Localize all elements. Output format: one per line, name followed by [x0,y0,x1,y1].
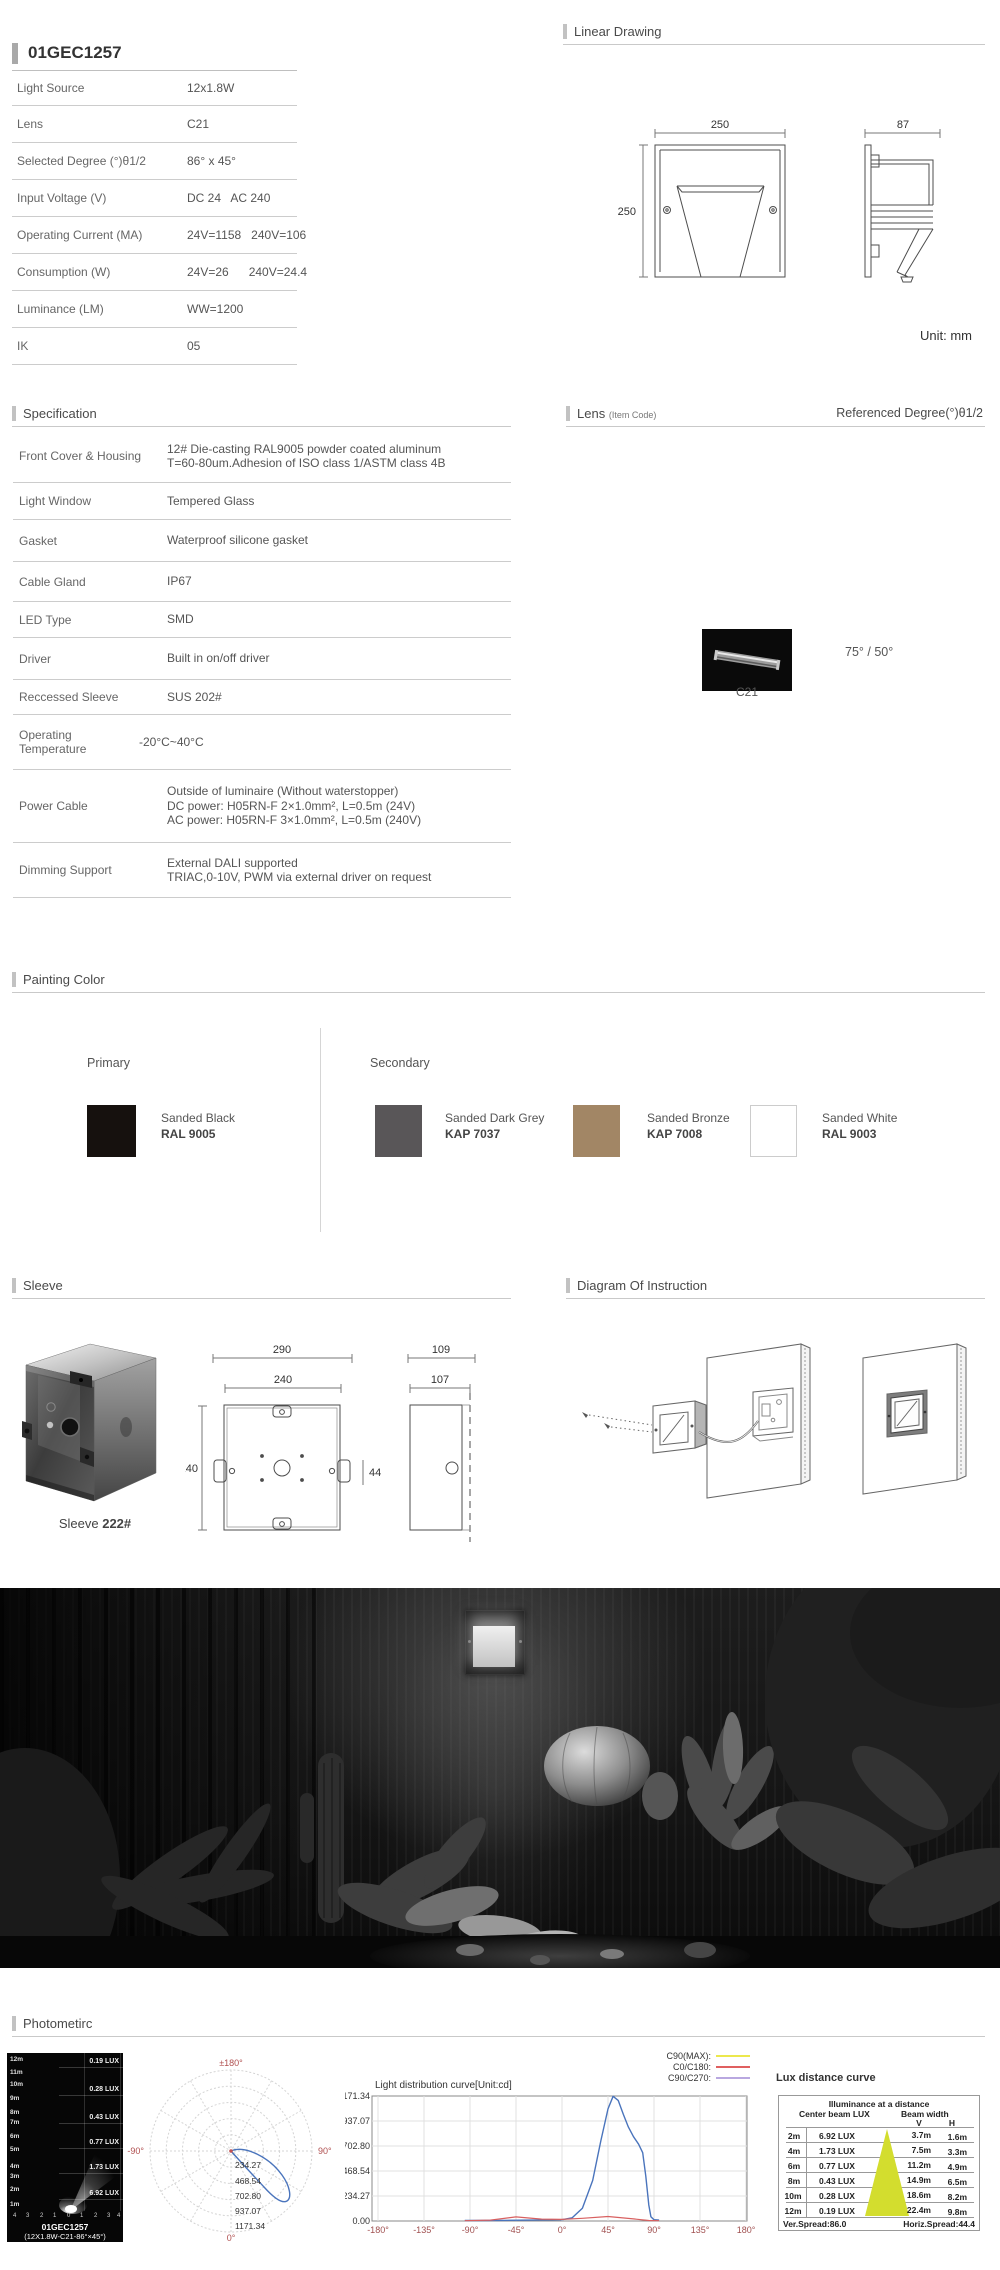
section-accent-bar [566,1278,570,1293]
table-row: Input Voltage (V)DC 24 AC 240 [12,180,297,217]
polar-diagram: ±180° -90° 90° 0° 234.27 468.54 702.80 9… [45,2055,335,2245]
photometric-header: Photometirc [12,2014,985,2037]
lens-image [702,629,792,691]
table-row: Operating Current (MA)24V=1158 240V=106 [12,217,297,254]
value-line: T=60-80um.Adhesion of ISO class 1/ASTM c… [167,456,445,471]
swatch-label: Sanded Dark GreyKAP 7037 [445,1110,544,1142]
polar-label-0: 0° [227,2233,236,2243]
lux-value: 6.92 LUX [819,2131,855,2141]
row-label: Front Cover & Housing [13,449,167,463]
lux-h-val: 3.3m [937,2147,967,2157]
section-title: Linear Drawing [574,24,661,39]
beam-distance: 8m [10,2109,19,2116]
row-value: 24V=1158 240V=106 [187,228,306,242]
swatch-name: Sanded Dark Grey [445,1110,544,1126]
sleeve-caption: Sleeve 222# [40,1516,150,1531]
table-row: Cable GlandIP67 [13,562,511,602]
beam-distance: 1m [10,2201,19,2208]
row-value: SUS 202# [167,690,222,705]
lux-distance-table: Illuminance at a distance Center beam LU… [778,2095,980,2231]
lens-title: Lens [577,406,605,421]
x-tick: -90° [462,2225,479,2235]
row-label: Power Cable [13,799,167,813]
table-row: Light WindowTempered Glass [13,483,511,520]
lux-value: 1.73 LUX [819,2146,855,2156]
sleeve-caption-text: Sleeve [59,1516,99,1531]
sleeve-side-drawing: 109 107 [400,1335,490,1545]
lux-h-val: 9.8m [937,2207,967,2217]
y-tick: 468.54 [345,2166,370,2176]
instruction-diagram [563,1320,985,1550]
row-value: 12# Die-casting RAL9005 powder coated al… [167,442,445,471]
table-row: Reccessed SleeveSUS 202# [13,680,511,715]
value-line: External DALI supported [167,856,431,871]
product-title-header: 01GEC1257 [12,40,297,71]
row-value: Built in on/off driver [167,651,270,666]
row-label: Dimming Support [13,863,167,877]
swatch-name: Sanded Bronze [647,1110,730,1126]
table-row: Selected Degree (°)θ1/286° x 45° [12,143,297,180]
polar-label-180: ±180° [219,2058,243,2068]
beam-distance: 9m [10,2095,19,2102]
dim-290: 290 [273,1344,291,1356]
x-tick: 45° [601,2225,615,2235]
value-line: 12# Die-casting RAL9005 powder coated al… [167,442,445,457]
y-tick: 937.07 [345,2116,370,2126]
table-row: Light Source12x1.8W [12,70,297,106]
primary-label: Primary [87,1056,130,1070]
beam-axis-tick: 2 [40,2213,43,2219]
swatch-label: Sanded BronzeKAP 7008 [647,1110,730,1142]
secondary-label: Secondary [370,1056,430,1070]
painting-divider [320,1028,321,1232]
row-label: Selected Degree (°)θ1/2 [12,154,187,168]
section-accent-bar [12,2016,16,2031]
polar-ring-value: 937.07 [235,2206,261,2216]
x-tick: -135° [413,2225,435,2235]
lens-degree-value: 75° / 50° [845,645,893,659]
lux-d: 6m [783,2161,805,2171]
row-value: Outside of luminaire (Without waterstopp… [167,784,421,828]
referenced-degree-title: Referenced Degree(°)θ1/2 [836,406,983,420]
swatch-label: Sanded BlackRAL 9005 [161,1110,235,1142]
table-row: Front Cover & Housing12# Die-casting RAL… [13,430,511,483]
row-label: Input Voltage (V) [12,191,187,205]
section-title: Sleeve [23,1278,63,1293]
lux-horiz-spread: Horiz.Spread:44.4 [903,2219,975,2229]
section-title: Diagram Of Instruction [577,1278,707,1293]
fixture-screw-right [519,1640,522,1643]
section-title: Painting Color [23,972,105,987]
lux-d: 10m [781,2191,805,2201]
lux-v: 7.5m [897,2145,931,2155]
row-value: 24V=26 240V=24.4 [187,265,307,279]
distribution-title: Light distribution curve[Unit:cd] [375,2080,512,2091]
dim-44: 44 [369,1467,381,1479]
y-tick: 1171.34 [345,2091,370,2101]
row-value: C21 [187,117,209,131]
table-row: Power CableOutside of luminaire (Without… [13,770,511,843]
swatch-code: KAP 7037 [445,1127,500,1141]
lens-item-label: C21 [702,685,792,699]
lens-header: Lens (Item Code) Referenced Degree(°)θ1/… [566,404,985,427]
row-value: IP67 [167,574,192,589]
swatch-label: Sanded WhiteRAL 9003 [822,1110,897,1142]
color-swatch-sanded-white [750,1105,797,1157]
section-accent-bar [566,406,570,421]
table-row: Consumption (W)24V=26 240V=24.4 [12,254,297,291]
value-line: DC power: H05RN-F 2×1.0mm², L=0.5m (24V) [167,799,421,814]
table-row: Operating Temperature-20°C~40°C [13,715,511,770]
lux-v: 14.9m [897,2175,931,2185]
x-tick: -180° [367,2225,389,2235]
product-code: 01GEC1257 [28,43,122,63]
row-label: Lens [12,117,187,131]
x-tick: 135° [691,2225,710,2235]
value-line: TRIAC,0-10V, PWM via external driver on … [167,870,431,885]
polar-label-90: 90° [318,2146,332,2156]
lens-subtitle: (Item Code) [609,410,657,420]
polar-label-neg90: -90° [127,2146,144,2156]
section-accent-bar [12,972,16,987]
table-row: LensC21 [12,106,297,143]
specification-header: Specification [12,404,511,427]
row-label: Light Window [13,494,167,508]
table-row: LED TypeSMD [13,602,511,638]
swatch-code: KAP 7008 [647,1127,702,1141]
row-value: DC 24 AC 240 [187,191,270,205]
sleeve-front-drawing: 290 240 240 44 [185,1335,385,1545]
x-tick: -45° [508,2225,525,2235]
sleeve-photo [18,1335,163,1510]
x-tick: 0° [558,2225,567,2235]
beam-distance: 4m [10,2163,19,2170]
sleeve-header: Sleeve [12,1276,511,1299]
beam-axis-tick: 4 [13,2213,16,2219]
row-value: External DALI supportedTRIAC,0-10V, PWM … [167,856,431,885]
y-tick: 702.80 [345,2141,370,2151]
lux-d: 2m [783,2131,805,2141]
dim-107: 107 [431,1374,449,1386]
sleeve-caption-code: 222# [102,1516,131,1531]
row-value: 86° x 45° [187,154,236,168]
polar-ring-value: 468.54 [235,2176,261,2186]
beam-distance: 10m [10,2081,23,2088]
lux-h-val: 1.6m [937,2132,967,2142]
row-label: Reccessed Sleeve [13,690,167,704]
section-title: Photometirc [23,2016,92,2031]
row-label: Luminance (LM) [12,302,187,316]
dim-240-inner: 240 [274,1374,292,1386]
row-label: IK [12,339,187,353]
table-row: GasketWaterproof silicone gasket [13,520,511,562]
row-value: SMD [167,612,194,627]
section-accent-bar [12,1278,16,1293]
datasheet-page: 01GEC1257 Light Source12x1.8W LensC21 Se… [0,0,1000,2270]
polar-ring-value: 234.27 [235,2160,261,2170]
value-line: Outside of luminaire (Without waterstopp… [167,784,421,799]
lux-h-val: 6.5m [937,2177,967,2187]
table-row: Luminance (LM)WW=1200 [12,291,297,328]
lux-h-val: 4.9m [937,2162,967,2172]
beam-distance: 2m [10,2186,19,2193]
lux-value: 0.43 LUX [819,2176,855,2186]
row-value: -20°C~40°C [139,735,204,750]
lux-ver-spread: Ver.Spread:86.0 [783,2219,846,2229]
row-label: Consumption (W) [12,265,187,279]
lux-v: 22.4m [897,2205,931,2215]
row-value: WW=1200 [187,302,243,316]
row-value: Tempered Glass [167,494,254,509]
row-value: Waterproof silicone gasket [167,533,308,548]
lux-v: 11.2m [897,2160,931,2170]
light-distribution-chart: Light distribution curve[Unit:cd] 1171.3… [345,2040,770,2240]
dim-side-width: 87 [897,119,909,131]
lux-v: 18.6m [897,2190,931,2200]
swatch-code: RAL 9003 [822,1127,876,1141]
swatch-name: Sanded Black [161,1110,235,1126]
dim-240-height: 240 [185,1463,198,1475]
beam-distance: 7m [10,2119,19,2126]
color-swatch-sanded-dark-grey [375,1105,422,1157]
lux-h-val: 8.2m [937,2192,967,2202]
lux-value: 0.28 LUX [819,2191,855,2201]
table-row: IK05 [12,328,297,365]
fixture-light-window [473,1626,515,1667]
beam-distance: 12m [10,2056,23,2063]
row-label: Gasket [13,534,167,548]
painting-color-header: Painting Color [12,970,985,993]
lux-d: 4m [783,2146,805,2156]
dim-front-height: 250 [618,206,636,218]
section-title: Specification [23,406,97,421]
swatch-name: Sanded White [822,1110,897,1126]
table-row: Dimming SupportExternal DALI supportedTR… [13,843,511,898]
row-label: Light Source [12,81,187,95]
linear-drawing-header: Linear Drawing [563,22,985,45]
beam-distance: 5m [10,2146,19,2153]
lux-d: 12m [781,2206,805,2216]
beam-distance: 6m [10,2133,19,2140]
lux-value: 0.77 LUX [819,2161,855,2171]
beam-distance: 11m [10,2069,23,2076]
instruction-header: Diagram Of Instruction [566,1276,985,1299]
dim-109: 109 [432,1344,450,1356]
unit-note: Unit: mm [920,328,972,343]
x-tick: 90° [647,2225,661,2235]
y-tick: 234.27 [345,2191,370,2201]
lux-value: 0.19 LUX [819,2206,855,2216]
dim-front-width: 250 [711,119,729,131]
color-swatch-sanded-black [87,1105,136,1157]
row-value: 12x1.8W [187,81,234,95]
polar-ring-value: 1171.34 [235,2221,265,2231]
application-photo [0,1588,1000,1968]
row-label: Driver [13,652,167,666]
row-label: Operating Temperature [13,728,139,756]
table-row: DriverBuilt in on/off driver [13,638,511,680]
color-swatch-sanded-bronze [573,1105,620,1157]
lux-v: 3.7m [897,2130,931,2140]
beam-distance: 3m [10,2173,19,2180]
row-value: 05 [187,339,200,353]
row-label: LED Type [13,613,167,627]
section-accent-bar [12,406,16,421]
row-label: Cable Gland [13,575,167,589]
lux-d: 8m [783,2176,805,2186]
lux-table-title: Lux distance curve [776,2072,876,2084]
fixture-screw-left [468,1640,471,1643]
polar-ring-value: 702.80 [235,2191,261,2201]
product-spec-table: Light Source12x1.8W LensC21 Selected Deg… [12,70,297,365]
section-title: Lens (Item Code) [577,406,656,421]
linear-drawing-graphic: 250 250 87 [563,60,985,340]
value-line: AC power: H05RN-F 3×1.0mm², L=0.5m (240V… [167,813,421,828]
section-accent-bar [563,24,567,39]
x-tick: 180° [737,2225,756,2235]
wall-light-fixture [465,1610,525,1675]
swatch-code: RAL 9005 [161,1127,215,1141]
beam-axis-tick: 3 [26,2213,29,2219]
specification-table: Front Cover & Housing12# Die-casting RAL… [13,430,511,898]
row-label: Operating Current (MA) [12,228,187,242]
lens-photo [702,629,792,691]
title-accent-bar [12,43,18,64]
